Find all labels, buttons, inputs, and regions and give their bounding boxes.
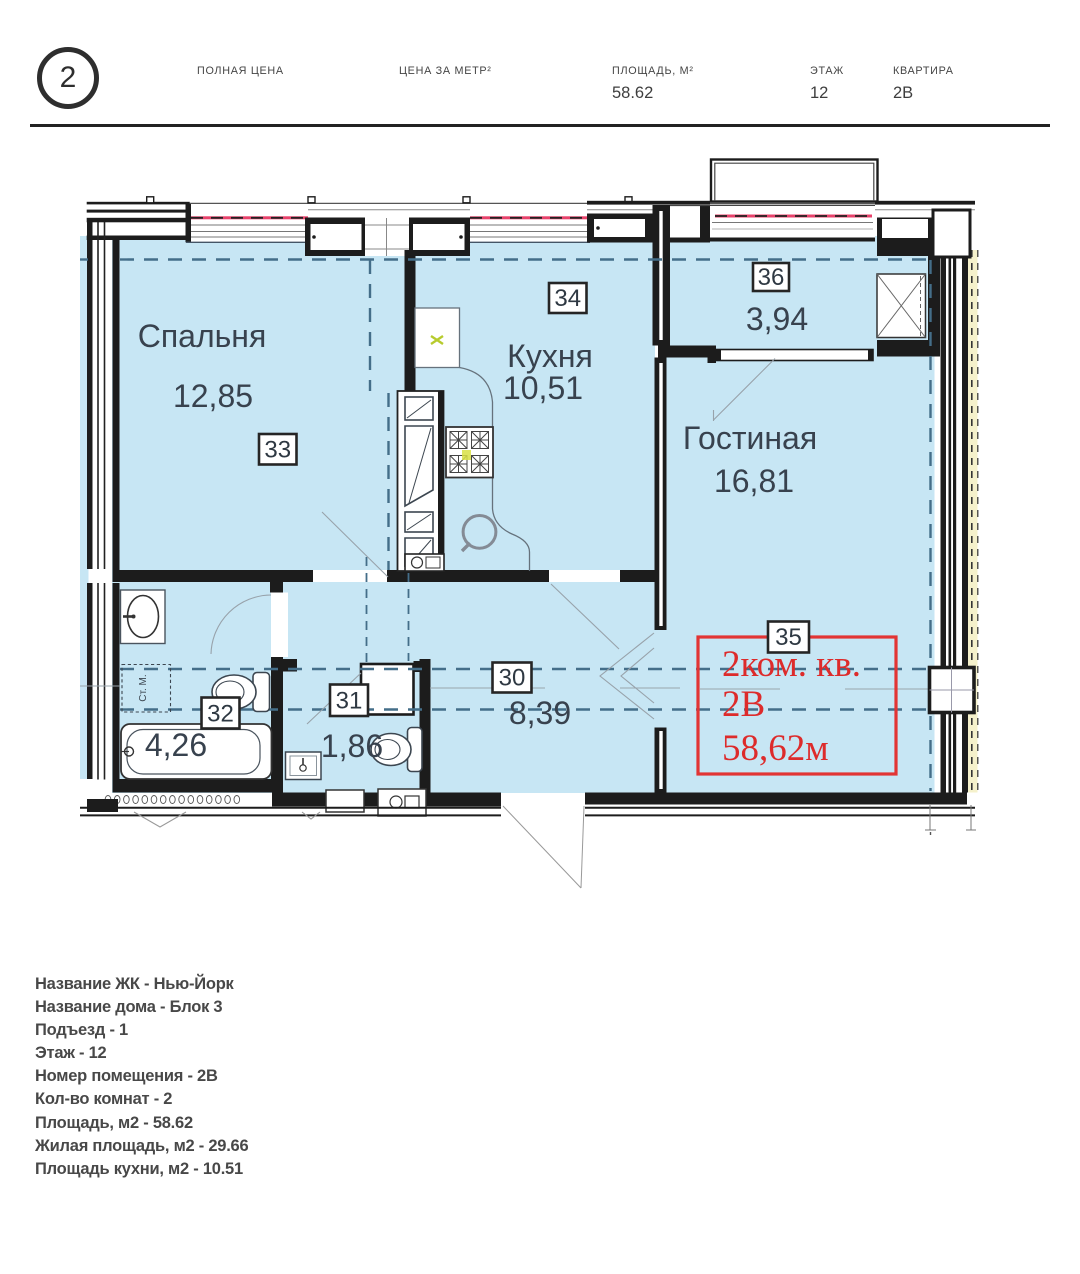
svg-text:32: 32 <box>207 701 234 728</box>
svg-text:16,81: 16,81 <box>714 463 794 499</box>
svg-text:30: 30 <box>499 665 526 692</box>
svg-text:Гостиная: Гостиная <box>683 420 817 456</box>
svg-text:1,86: 1,86 <box>321 728 383 764</box>
svg-text:4,26: 4,26 <box>145 727 207 763</box>
svg-text:Кухня: Кухня <box>507 338 593 374</box>
svg-text:2В: 2В <box>722 684 765 725</box>
svg-text:8,39: 8,39 <box>509 695 571 731</box>
svg-text:12,85: 12,85 <box>173 378 253 414</box>
svg-text:36: 36 <box>758 264 785 291</box>
svg-text:31: 31 <box>336 688 363 715</box>
svg-text:34: 34 <box>554 285 581 312</box>
svg-text:58,62м: 58,62м <box>722 728 829 769</box>
svg-text:35: 35 <box>775 624 802 651</box>
svg-text:Ст. М.: Ст. М. <box>138 674 149 701</box>
svg-text:3,94: 3,94 <box>746 301 808 337</box>
svg-text:33: 33 <box>264 437 291 464</box>
svg-text:10,51: 10,51 <box>503 370 583 406</box>
svg-text:Спальня: Спальня <box>138 318 267 354</box>
